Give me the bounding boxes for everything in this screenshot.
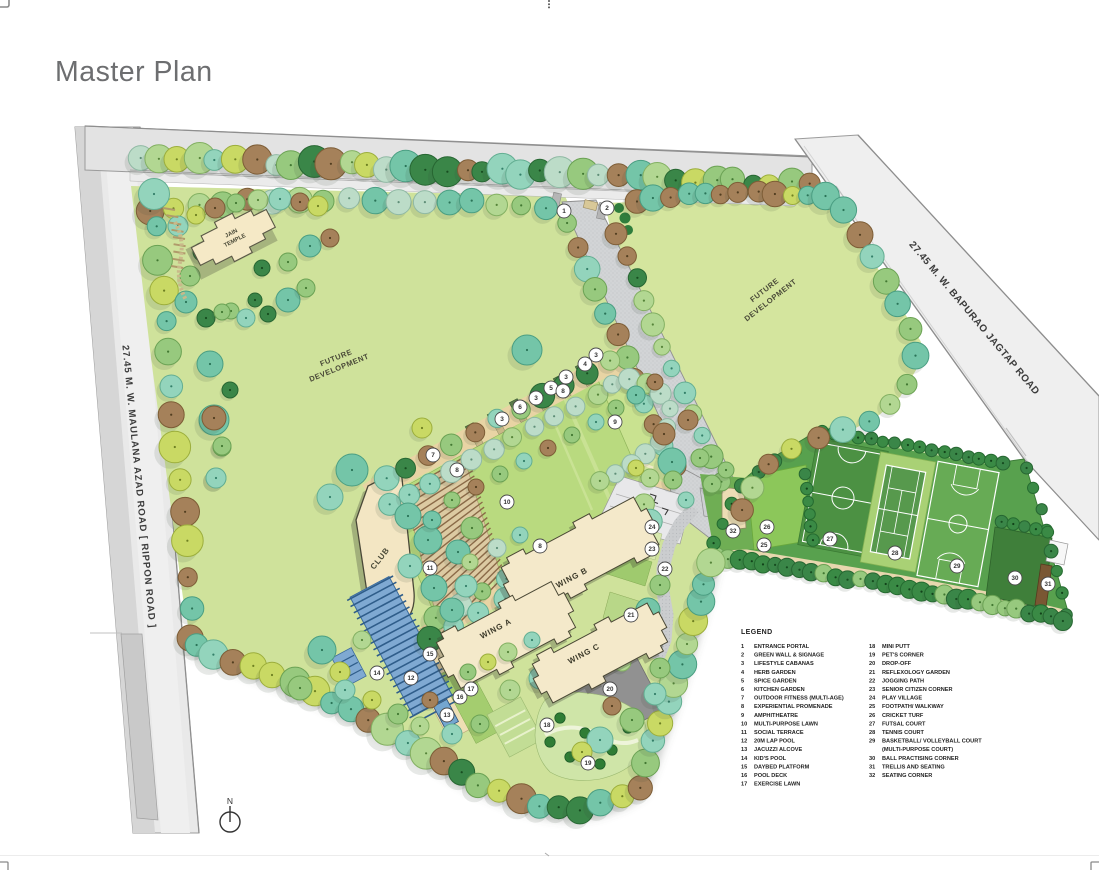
svg-text:EXERCISE LAWN: EXERCISE LAWN bbox=[754, 782, 800, 788]
svg-text:27: 27 bbox=[869, 721, 875, 727]
svg-text:DAYBED PLATFORM: DAYBED PLATFORM bbox=[754, 764, 810, 770]
svg-text:POOL DECK: POOL DECK bbox=[754, 773, 787, 779]
svg-text:Master Plan: Master Plan bbox=[55, 56, 213, 88]
svg-text:10: 10 bbox=[741, 721, 747, 727]
svg-text:1: 1 bbox=[741, 644, 744, 650]
svg-text:31: 31 bbox=[869, 764, 875, 770]
svg-text:6: 6 bbox=[741, 687, 744, 693]
svg-text:11: 11 bbox=[427, 565, 434, 572]
svg-text:KID'S POOL: KID'S POOL bbox=[754, 756, 787, 762]
svg-text:SPICE GARDEN: SPICE GARDEN bbox=[754, 678, 797, 684]
svg-text:32: 32 bbox=[869, 773, 875, 779]
svg-text:31: 31 bbox=[1045, 581, 1052, 588]
svg-text:13: 13 bbox=[444, 712, 451, 719]
svg-text:13: 13 bbox=[741, 747, 747, 753]
svg-text:8: 8 bbox=[538, 543, 542, 550]
svg-text:DROP-OFF: DROP-OFF bbox=[882, 661, 912, 667]
svg-text:SENIOR CITIZEN CORNER: SENIOR CITIZEN CORNER bbox=[882, 687, 953, 693]
svg-text:10: 10 bbox=[504, 499, 511, 506]
svg-text:26: 26 bbox=[869, 713, 875, 719]
svg-text:4: 4 bbox=[583, 361, 587, 368]
svg-text:28: 28 bbox=[869, 730, 875, 736]
svg-text:5: 5 bbox=[741, 678, 744, 684]
svg-text:27: 27 bbox=[827, 536, 834, 543]
svg-text:25: 25 bbox=[761, 542, 768, 549]
svg-text:19: 19 bbox=[869, 653, 875, 659]
svg-text:18: 18 bbox=[869, 644, 875, 650]
svg-text:30: 30 bbox=[1012, 575, 1019, 582]
svg-text:28: 28 bbox=[892, 550, 899, 557]
svg-text:24: 24 bbox=[869, 696, 876, 702]
svg-text:24: 24 bbox=[649, 524, 656, 531]
svg-text:SEATING CORNER: SEATING CORNER bbox=[882, 773, 932, 779]
svg-text:KITCHEN GARDEN: KITCHEN GARDEN bbox=[754, 687, 805, 693]
svg-text:EXPERIENTIAL PROMENADE: EXPERIENTIAL PROMENADE bbox=[754, 704, 833, 710]
svg-text:ENTRANCE PORTAL: ENTRANCE PORTAL bbox=[754, 644, 810, 650]
svg-text:26: 26 bbox=[764, 524, 771, 531]
svg-text:25: 25 bbox=[869, 704, 875, 710]
svg-text:LIFESTYLE CABANAS: LIFESTYLE CABANAS bbox=[754, 661, 814, 667]
svg-text:PLAY VILLAGE: PLAY VILLAGE bbox=[882, 696, 922, 702]
svg-text:15: 15 bbox=[741, 764, 747, 770]
svg-text:16: 16 bbox=[741, 773, 747, 779]
svg-text:20M LAP POOL: 20M LAP POOL bbox=[754, 739, 796, 745]
svg-text:19: 19 bbox=[585, 760, 592, 767]
svg-text:JOGGING PATH: JOGGING PATH bbox=[882, 678, 924, 684]
svg-text:JACUZZI ALCOVE: JACUZZI ALCOVE bbox=[754, 747, 803, 753]
svg-text:3: 3 bbox=[594, 352, 598, 359]
svg-text:32: 32 bbox=[730, 528, 737, 535]
svg-text:6: 6 bbox=[518, 404, 522, 411]
svg-text:7: 7 bbox=[741, 696, 744, 702]
svg-text:MINI PUTT: MINI PUTT bbox=[882, 644, 911, 650]
svg-text:N: N bbox=[227, 796, 233, 806]
svg-text:OUTDOOR FITNESS (MULTI-AGE): OUTDOOR FITNESS (MULTI-AGE) bbox=[754, 696, 844, 702]
svg-text:20: 20 bbox=[607, 686, 614, 693]
svg-text:LEGEND: LEGEND bbox=[741, 629, 773, 636]
svg-text:23: 23 bbox=[869, 687, 875, 693]
svg-text:3: 3 bbox=[534, 395, 538, 402]
svg-text:21: 21 bbox=[869, 670, 875, 676]
svg-text:16: 16 bbox=[457, 694, 464, 701]
svg-text:3: 3 bbox=[564, 374, 568, 381]
svg-text:14: 14 bbox=[741, 756, 748, 762]
svg-text:8: 8 bbox=[455, 467, 459, 474]
svg-text:TENNIS COURT: TENNIS COURT bbox=[882, 730, 925, 736]
svg-text:7: 7 bbox=[431, 452, 435, 459]
svg-text:3: 3 bbox=[500, 416, 504, 423]
svg-text:30: 30 bbox=[869, 756, 875, 762]
svg-text:MULTI-PURPOSE LAWN: MULTI-PURPOSE LAWN bbox=[754, 721, 818, 727]
svg-text:29: 29 bbox=[954, 563, 961, 570]
svg-text:REFLEXOLOGY GARDEN: REFLEXOLOGY GARDEN bbox=[882, 670, 950, 676]
svg-text:14: 14 bbox=[374, 670, 381, 677]
svg-text:3: 3 bbox=[741, 661, 744, 667]
svg-text:22: 22 bbox=[869, 678, 875, 684]
svg-text:(MULTI-PURPOSE COURT): (MULTI-PURPOSE COURT) bbox=[882, 747, 953, 753]
svg-text:BASKETBALL/ VOLLEYBALL COURT: BASKETBALL/ VOLLEYBALL COURT bbox=[882, 739, 982, 745]
svg-text:8: 8 bbox=[741, 704, 744, 710]
svg-text:FUTSAL COURT: FUTSAL COURT bbox=[882, 721, 926, 727]
svg-text:17: 17 bbox=[741, 782, 747, 788]
svg-text:23: 23 bbox=[649, 546, 656, 553]
svg-text:BALL PRACTISING CORNER: BALL PRACTISING CORNER bbox=[882, 756, 959, 762]
svg-text:CRICKET TURF: CRICKET TURF bbox=[882, 713, 924, 719]
svg-text:18: 18 bbox=[544, 722, 551, 729]
svg-text:HERB GARDEN: HERB GARDEN bbox=[754, 670, 796, 676]
svg-text:21: 21 bbox=[628, 612, 635, 619]
svg-text:GREEN WALL & SIGNAGE: GREEN WALL & SIGNAGE bbox=[754, 653, 824, 659]
svg-text:12: 12 bbox=[408, 675, 415, 682]
svg-text:9: 9 bbox=[613, 419, 617, 426]
svg-text:5: 5 bbox=[549, 385, 553, 392]
svg-text:11: 11 bbox=[741, 730, 747, 736]
svg-text:2: 2 bbox=[605, 205, 609, 212]
svg-text:29: 29 bbox=[869, 739, 875, 745]
svg-text:AMPHITHEATRE: AMPHITHEATRE bbox=[754, 713, 798, 719]
svg-text:PET'S CORNER: PET'S CORNER bbox=[882, 653, 924, 659]
svg-text:2: 2 bbox=[741, 653, 744, 659]
svg-text:22: 22 bbox=[662, 566, 669, 573]
svg-text:FOOTPATH/ WALKWAY: FOOTPATH/ WALKWAY bbox=[882, 704, 944, 710]
svg-text:8: 8 bbox=[561, 388, 565, 395]
svg-text:9: 9 bbox=[741, 713, 744, 719]
svg-text:TRELLIS AND SEATING: TRELLIS AND SEATING bbox=[882, 764, 945, 770]
svg-text:SOCIAL TERRACE: SOCIAL TERRACE bbox=[754, 730, 804, 736]
svg-text:17: 17 bbox=[468, 686, 475, 693]
svg-text:15: 15 bbox=[427, 651, 434, 658]
svg-text:12: 12 bbox=[741, 739, 747, 745]
svg-text:20: 20 bbox=[869, 661, 875, 667]
svg-text:1: 1 bbox=[562, 208, 566, 215]
